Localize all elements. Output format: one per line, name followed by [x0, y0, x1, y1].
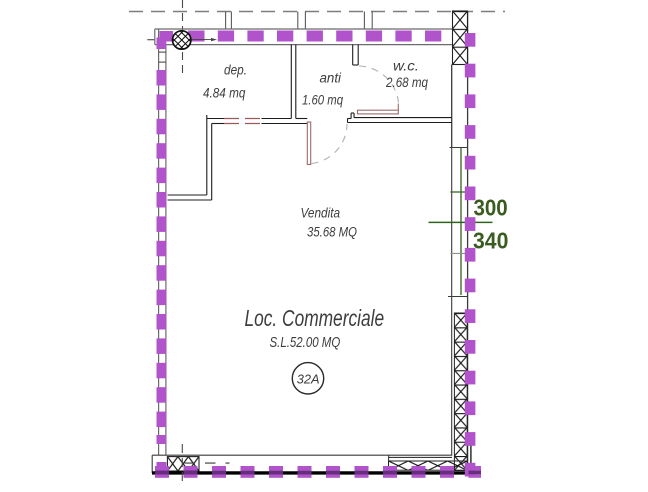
svg-text:340: 340 — [473, 227, 508, 253]
svg-text:anti: anti — [320, 71, 342, 86]
svg-text:4.84 mq: 4.84 mq — [203, 86, 246, 101]
svg-text:32A: 32A — [297, 371, 320, 386]
svg-text:Vendita: Vendita — [301, 206, 341, 221]
svg-text:2.68 mq: 2.68 mq — [385, 75, 428, 90]
svg-text:300: 300 — [474, 195, 508, 221]
svg-text:S.L.52.00 MQ: S.L.52.00 MQ — [270, 334, 341, 351]
svg-text:w.c.: w.c. — [393, 58, 419, 73]
svg-text:dep.: dep. — [224, 63, 247, 78]
svg-text:Loc. Commerciale: Loc. Commerciale — [245, 305, 385, 331]
svg-text:1.60 mq: 1.60 mq — [302, 92, 343, 107]
svg-text:35.68 MQ: 35.68 MQ — [307, 224, 357, 239]
